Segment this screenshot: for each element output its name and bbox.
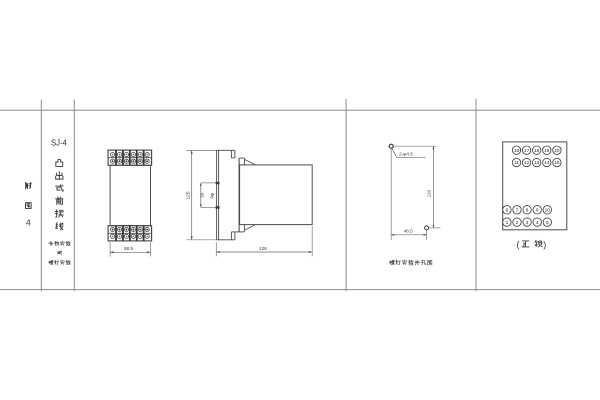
- svg-text:10: 10: [545, 208, 551, 214]
- svg-text:110: 110: [426, 189, 431, 197]
- svg-text:35: 35: [199, 192, 204, 198]
- svg-text:16: 16: [514, 148, 520, 154]
- svg-text:3: 3: [526, 220, 529, 226]
- svg-text:15: 15: [554, 160, 560, 166]
- svg-text:18: 18: [534, 148, 540, 154]
- svg-text:(: (: [517, 239, 520, 249]
- svg-text:125: 125: [186, 191, 192, 199]
- svg-text:12: 12: [524, 160, 530, 166]
- svg-text:SJ-4: SJ-4: [51, 138, 68, 147]
- svg-text:11: 11: [514, 160, 519, 166]
- svg-text:): ): [543, 239, 546, 249]
- svg-text:17: 17: [524, 148, 530, 154]
- svg-text:8: 8: [526, 208, 529, 214]
- svg-text:6: 6: [506, 208, 509, 214]
- svg-text:48.5: 48.5: [404, 229, 413, 234]
- svg-text:4: 4: [536, 220, 539, 226]
- svg-text:1: 1: [506, 220, 509, 226]
- svg-text:9: 9: [536, 208, 539, 214]
- svg-text:5: 5: [546, 220, 549, 226]
- svg-text:2-φ4.5: 2-φ4.5: [399, 152, 413, 157]
- svg-text:2: 2: [516, 220, 519, 226]
- svg-text:19: 19: [544, 148, 550, 154]
- svg-text:128: 128: [259, 246, 267, 252]
- svg-text:4: 4: [26, 218, 31, 228]
- svg-text:20: 20: [554, 148, 560, 154]
- svg-text:13: 13: [534, 160, 540, 166]
- svg-text:9φ: 9φ: [209, 193, 214, 199]
- svg-text:14: 14: [544, 160, 550, 166]
- svg-text:68.5: 68.5: [124, 246, 134, 251]
- svg-text:7: 7: [516, 208, 519, 214]
